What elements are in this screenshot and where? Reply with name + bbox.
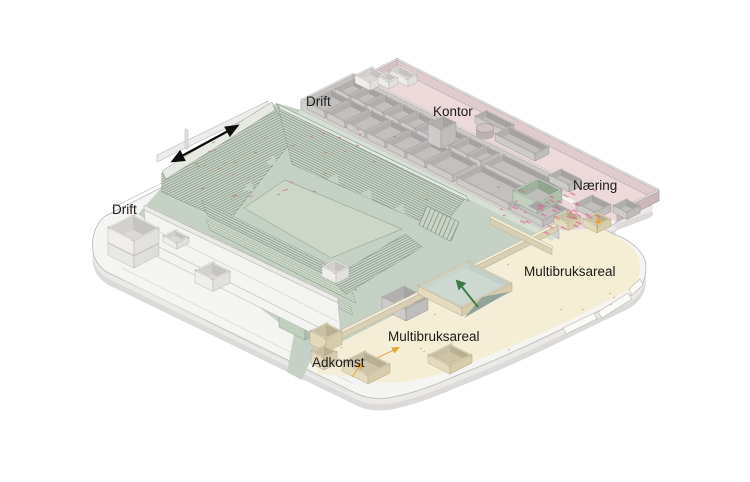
svg-text:Næring: Næring (573, 178, 617, 193)
svg-text:Kontor: Kontor (433, 104, 473, 119)
svg-text:Multibruksareal: Multibruksareal (524, 264, 616, 279)
svg-text:Drift: Drift (306, 94, 331, 109)
svg-text:Multibruksareal: Multibruksareal (388, 329, 480, 344)
svg-text:Adkomst: Adkomst (312, 355, 365, 370)
svg-text:Drift: Drift (112, 202, 137, 217)
